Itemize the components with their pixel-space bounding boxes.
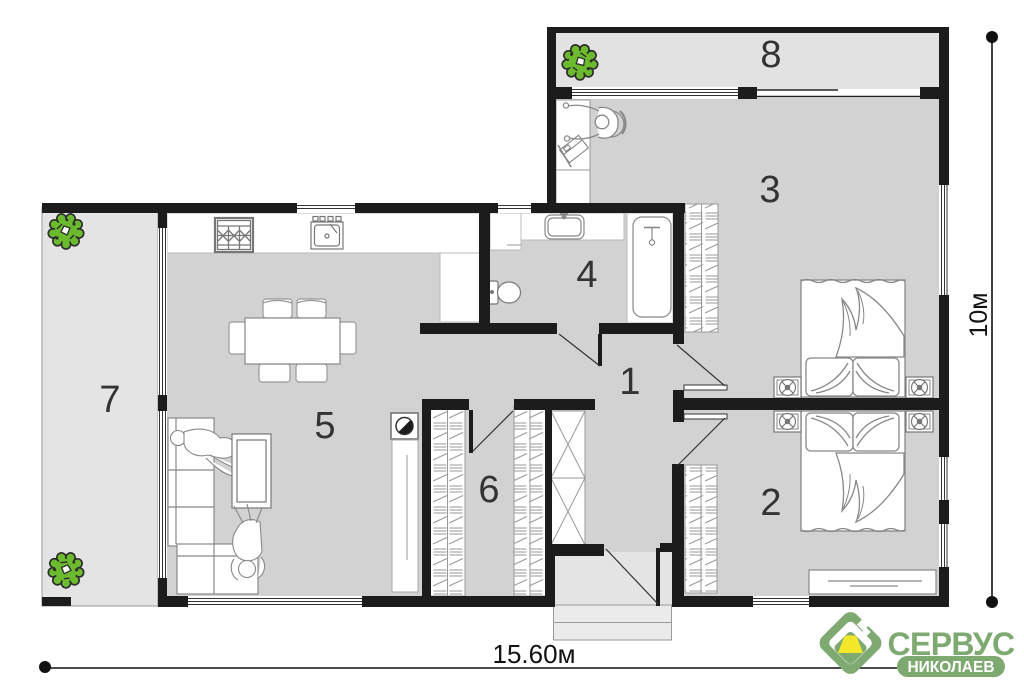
svg-text:4: 4 <box>576 254 597 296</box>
svg-text:НИКОЛАЕВ: НИКОЛАЕВ <box>907 659 994 676</box>
svg-text:5: 5 <box>314 405 335 447</box>
svg-text:8: 8 <box>760 34 781 76</box>
svg-text:1: 1 <box>619 361 640 403</box>
svg-text:10м: 10м <box>965 293 993 338</box>
svg-text:7: 7 <box>99 379 120 421</box>
svg-text:6: 6 <box>478 469 499 511</box>
svg-text:3: 3 <box>759 169 780 211</box>
svg-text:15.60м: 15.60м <box>493 639 576 669</box>
svg-text:2: 2 <box>760 482 781 524</box>
